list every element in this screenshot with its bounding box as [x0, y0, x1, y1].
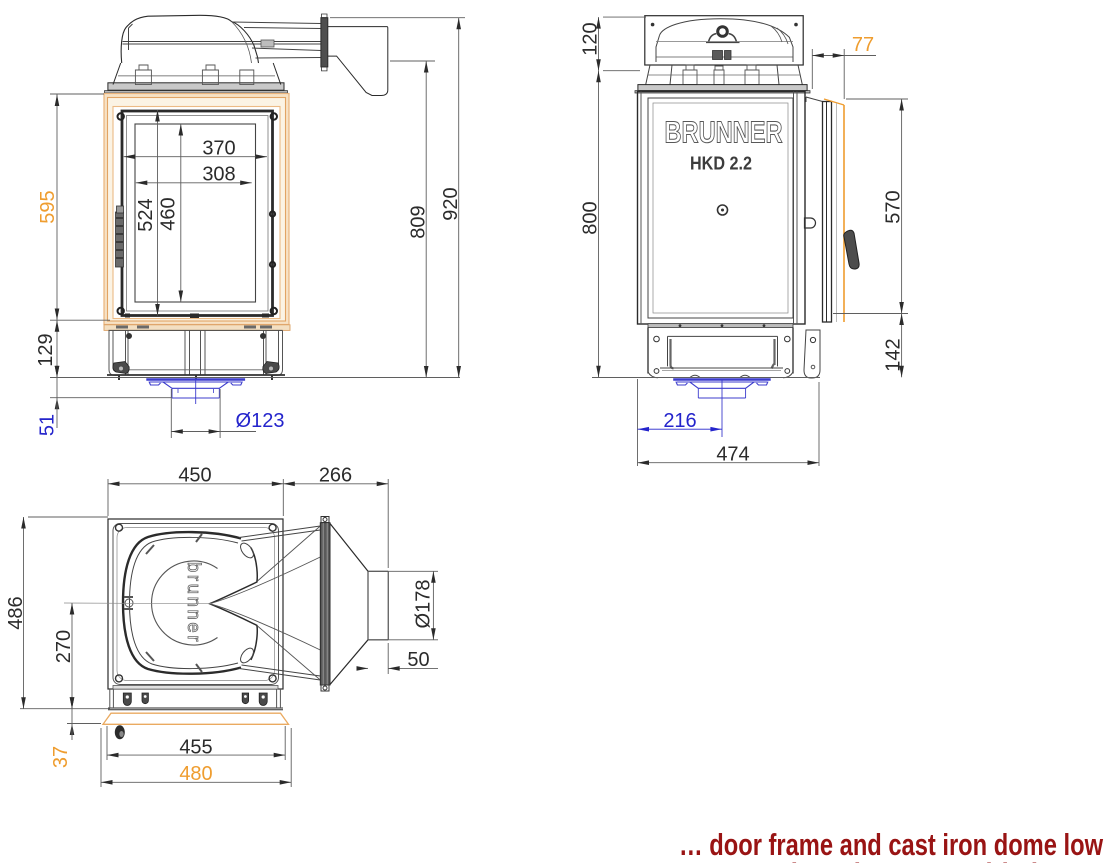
svg-text:800: 800: [580, 201, 602, 234]
svg-text:… connection piece rotatable b: … connection piece rotatable by 0°: [656, 857, 1094, 864]
svg-text:486: 486: [5, 596, 27, 629]
svg-text:809: 809: [408, 205, 430, 238]
svg-text:51: 51: [37, 414, 59, 436]
svg-text:brunner: brunner: [184, 562, 205, 642]
svg-text:474: 474: [716, 444, 749, 466]
svg-text:129: 129: [35, 333, 57, 366]
svg-text:120: 120: [580, 22, 602, 55]
svg-text:450: 450: [178, 465, 211, 487]
svg-text:BRUNNER: BRUNNER: [665, 115, 783, 150]
svg-text:Ø123: Ø123: [236, 410, 285, 432]
svg-text:308: 308: [202, 164, 235, 186]
svg-text:920: 920: [440, 187, 462, 220]
svg-text:142: 142: [883, 338, 905, 371]
svg-text:480: 480: [179, 763, 212, 785]
svg-text:370: 370: [202, 138, 235, 160]
svg-text:460: 460: [158, 197, 180, 230]
svg-text:570: 570: [883, 190, 905, 223]
svg-text:266: 266: [319, 465, 352, 487]
svg-text:77: 77: [852, 34, 874, 56]
svg-text:524: 524: [135, 198, 157, 231]
svg-text:595: 595: [37, 190, 59, 223]
svg-text:216: 216: [663, 410, 696, 432]
svg-text:37: 37: [50, 746, 72, 768]
svg-text:50: 50: [407, 649, 429, 671]
svg-text:Ø178: Ø178: [413, 580, 435, 629]
svg-text:HKD 2.2: HKD 2.2: [690, 153, 752, 174]
svg-text:270: 270: [53, 630, 75, 663]
svg-text:455: 455: [179, 737, 212, 759]
